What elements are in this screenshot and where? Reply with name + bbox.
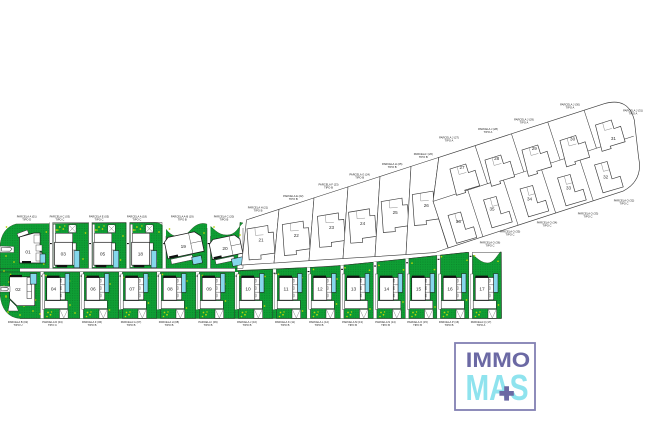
svg-text:04: 04 xyxy=(51,287,57,293)
svg-text:TIPO A: TIPO A xyxy=(520,121,529,125)
svg-text:11: 11 xyxy=(284,287,289,293)
svg-text:TIPO C: TIPO C xyxy=(543,224,552,228)
svg-text:TIPO B: TIPO B xyxy=(355,176,364,180)
svg-text:18: 18 xyxy=(138,252,144,258)
svg-text:28: 28 xyxy=(494,156,500,161)
svg-text:TIPO B: TIPO B xyxy=(413,323,422,327)
svg-text:17: 17 xyxy=(479,287,485,293)
svg-text:30: 30 xyxy=(570,137,576,142)
svg-text:TIPO B: TIPO B xyxy=(419,155,428,159)
svg-text:TIPO B: TIPO B xyxy=(165,323,174,327)
svg-text:25: 25 xyxy=(393,210,399,215)
svg-text:TIPO B: TIPO B xyxy=(88,323,97,327)
svg-text:TIPO C: TIPO C xyxy=(48,323,57,327)
svg-text:TIPO C: TIPO C xyxy=(55,217,64,221)
svg-text:MAS: MAS xyxy=(466,367,529,408)
svg-text:TIPO C: TIPO C xyxy=(132,217,141,221)
svg-text:23: 23 xyxy=(329,225,335,230)
svg-text:TIPO B: TIPO B xyxy=(324,186,333,190)
svg-text:09: 09 xyxy=(206,287,212,293)
svg-text:TIPO A: TIPO A xyxy=(445,139,454,143)
svg-text:07: 07 xyxy=(129,287,135,293)
svg-text:TIPO B: TIPO B xyxy=(315,323,324,327)
svg-text:19: 19 xyxy=(181,244,187,250)
svg-text:TIPO C: TIPO C xyxy=(95,217,104,221)
svg-text:14: 14 xyxy=(384,287,390,293)
svg-text:26: 26 xyxy=(424,203,430,208)
svg-text:10: 10 xyxy=(245,287,251,293)
svg-text:13: 13 xyxy=(351,287,357,293)
svg-text:35: 35 xyxy=(489,207,495,212)
svg-text:22: 22 xyxy=(294,233,300,238)
svg-text:TIPO U: TIPO U xyxy=(14,323,23,327)
svg-text:TIPO B: TIPO B xyxy=(289,197,298,201)
svg-text:02: 02 xyxy=(15,287,21,293)
svg-text:16: 16 xyxy=(447,287,453,293)
svg-text:TIPO A: TIPO A xyxy=(477,323,486,327)
svg-text:TIPO B: TIPO B xyxy=(254,209,263,213)
svg-text:34: 34 xyxy=(527,196,533,201)
svg-text:15: 15 xyxy=(416,287,422,293)
svg-text:TIPO C: TIPO C xyxy=(620,202,629,206)
svg-text:12: 12 xyxy=(317,287,323,293)
svg-text:TIPO C: TIPO C xyxy=(486,244,495,248)
svg-text:TIPO B: TIPO B xyxy=(204,323,213,327)
svg-text:TIPO B: TIPO B xyxy=(445,323,454,327)
svg-text:TIPO B: TIPO B xyxy=(178,217,187,221)
svg-text:21: 21 xyxy=(258,238,264,243)
svg-text:24: 24 xyxy=(360,221,366,226)
svg-text:03: 03 xyxy=(61,252,67,258)
svg-text:TIPO A: TIPO A xyxy=(629,112,638,116)
svg-text:TIPO B: TIPO B xyxy=(381,323,390,327)
svg-text:20: 20 xyxy=(222,246,228,252)
svg-text:27: 27 xyxy=(459,165,465,170)
svg-text:TIPO A: TIPO A xyxy=(566,105,575,109)
svg-text:33: 33 xyxy=(566,186,572,191)
svg-text:TIPO B: TIPO B xyxy=(281,323,290,327)
svg-text:36: 36 xyxy=(456,219,462,224)
svg-text:TIPO C: TIPO C xyxy=(584,215,593,219)
svg-text:29: 29 xyxy=(532,146,538,151)
svg-text:TIPO A: TIPO A xyxy=(484,130,493,134)
svg-text:01: 01 xyxy=(25,250,31,256)
svg-text:TIPO B: TIPO B xyxy=(219,217,228,221)
svg-text:06: 06 xyxy=(90,287,96,293)
svg-text:TIPO B: TIPO B xyxy=(243,323,252,327)
svg-text:31: 31 xyxy=(611,136,617,141)
svg-text:05: 05 xyxy=(100,252,106,258)
svg-text:32: 32 xyxy=(603,174,609,179)
svg-text:TIPO B: TIPO B xyxy=(388,165,397,169)
svg-text:TIPO B: TIPO B xyxy=(348,323,357,327)
svg-text:TIPO C: TIPO C xyxy=(506,233,515,237)
svg-text:08: 08 xyxy=(167,287,173,293)
svg-text:TIPO B: TIPO B xyxy=(127,323,136,327)
svg-text:TIPO D: TIPO D xyxy=(22,217,31,221)
